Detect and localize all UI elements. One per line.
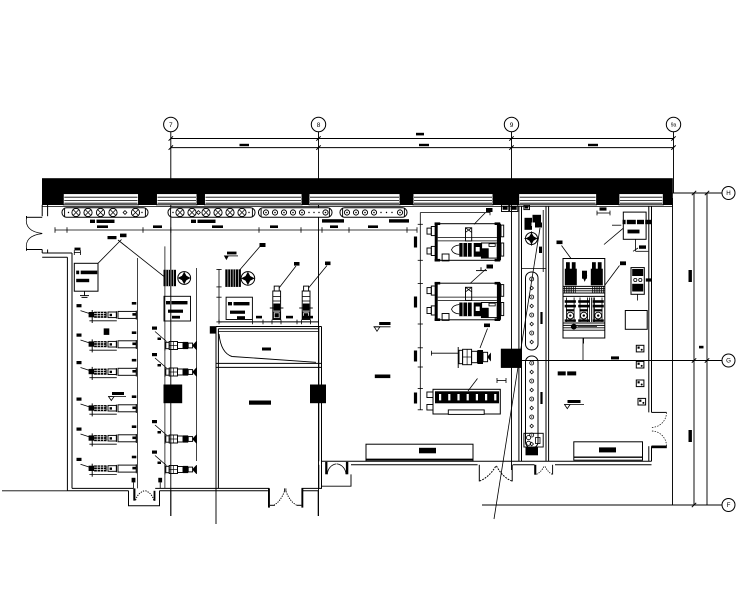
- svg-text:9a: 9a: [671, 123, 677, 129]
- svg-text:F: F: [727, 502, 731, 509]
- svg-text:9: 9: [510, 122, 514, 129]
- svg-text:7: 7: [169, 122, 173, 129]
- svg-text:G: G: [726, 358, 731, 365]
- svg-text:8: 8: [317, 122, 321, 129]
- svg-text:H: H: [726, 190, 730, 197]
